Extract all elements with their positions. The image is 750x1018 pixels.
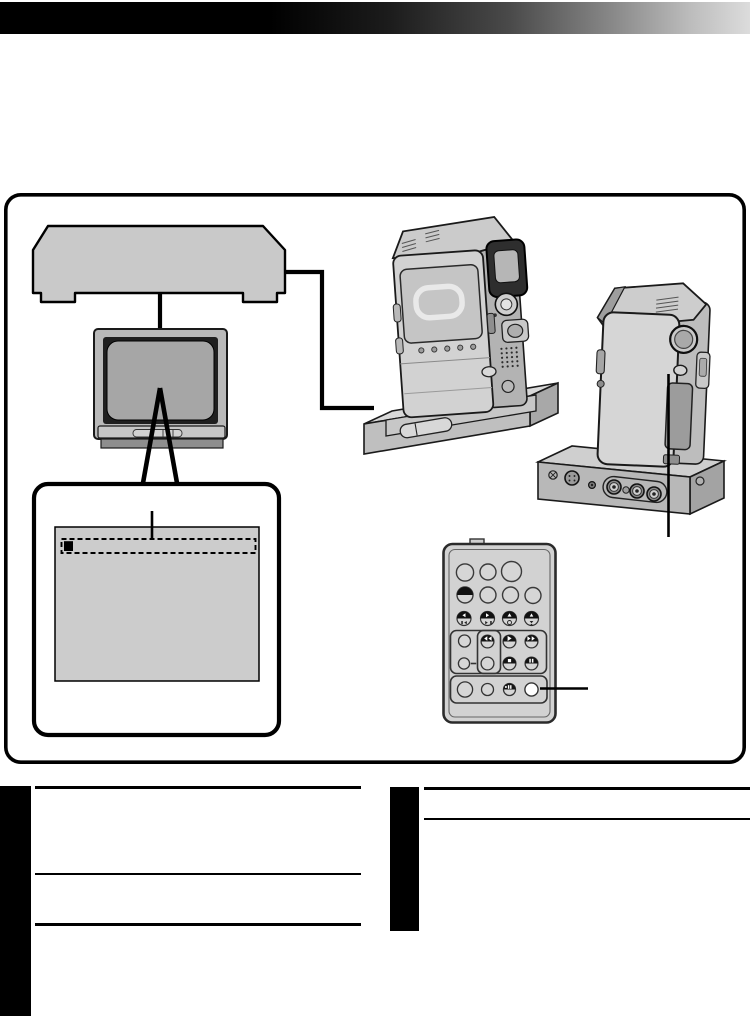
tv-screen [107,341,214,420]
s-video-jack [565,471,579,485]
remote-button [525,588,541,604]
remote-button [480,564,496,580]
manual-page [0,0,750,1018]
right-section-bar [390,787,419,931]
remote-button [456,564,473,581]
remote-control-illustration [444,539,589,723]
cassette-door [400,264,483,343]
camcorder-rear-illustration [591,280,713,469]
left-section-bar [0,786,31,1016]
rca-jack [607,480,621,494]
rca-jack [647,487,661,501]
right-column-rule-top [424,787,750,790]
dock-release-button [674,365,687,376]
remote-button [502,562,522,582]
connection-diagram [0,0,750,1018]
closeup-screen [55,527,259,681]
rca-jack [630,484,644,498]
left-column-rule-bottom [35,923,361,926]
vcr-to-dock-cable [285,272,374,408]
screen-closeup-box [34,484,279,735]
left-column-rule-top [35,786,361,789]
remote-button [480,587,496,603]
right-column-rule-bottom [424,818,750,820]
remote-button [503,587,519,603]
vcr-illustration [33,226,285,302]
highlighted-button [525,683,538,696]
screw [696,477,704,485]
selection-cursor-block [64,541,73,551]
left-column-rule-middle [35,873,361,875]
camcorder-front-illustration [387,215,535,418]
